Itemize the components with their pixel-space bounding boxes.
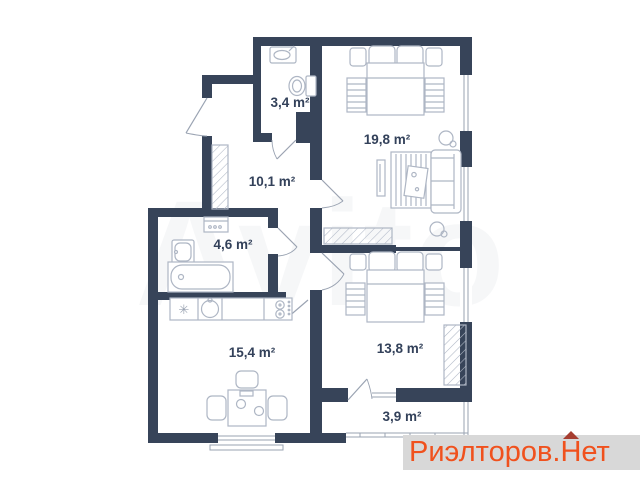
floor-plan-image: Avito	[0, 0, 640, 478]
svg-text:✳: ✳	[179, 303, 190, 318]
wardrobe-icon	[444, 325, 466, 385]
room-label-kitchen-living: 15,4 m²	[229, 345, 276, 360]
rug-icon	[347, 78, 366, 112]
window-icon	[460, 75, 472, 131]
toilet-icon	[289, 76, 316, 96]
washing-machine-icon	[204, 217, 228, 232]
floor-lamp-icon	[439, 131, 456, 147]
room-label-bedroom-second: 13,8 m²	[377, 341, 424, 356]
window-icon	[460, 268, 472, 322]
rug-icon	[425, 78, 444, 112]
room-label-bathroom: 4,6 m²	[213, 237, 253, 252]
bathtub-icon	[168, 262, 233, 292]
sofa-icon	[431, 150, 461, 213]
brand-suffix: ет	[581, 438, 609, 467]
room-label-balcony: 3,9 m²	[382, 409, 422, 424]
wardrobe-icon	[324, 228, 392, 244]
window-icon	[372, 390, 396, 400]
window-icon	[210, 433, 283, 450]
room-label-wc: 3,4 m²	[270, 95, 310, 110]
entrance-door-icon	[186, 98, 207, 136]
brand-roofed-letter: Н	[560, 438, 581, 467]
sink-icon	[172, 240, 194, 264]
floor-plan-drawing: Avito	[0, 0, 640, 478]
rug-icon	[346, 283, 365, 315]
wardrobe-icon	[212, 145, 228, 209]
dining-table-icon	[207, 371, 287, 426]
fridge-icon: ✳	[179, 303, 190, 318]
kitchen-counter: ✳	[170, 298, 292, 320]
mirror-icon	[377, 160, 385, 196]
roof-icon	[563, 431, 579, 439]
door-icon	[272, 140, 296, 159]
coffee-table-icon	[404, 166, 428, 198]
brand-prefix: Риэлторов.	[409, 438, 560, 467]
room-label-hallway: 10,1 m²	[249, 174, 296, 189]
brand-watermark-text: Риэлторов.Нет	[403, 438, 610, 467]
balcony-door-icon	[348, 379, 372, 400]
window-icon	[460, 167, 472, 221]
sink-icon	[270, 46, 296, 63]
brand-watermark-band: Риэлторов.Нет	[403, 435, 640, 470]
rug-icon	[425, 283, 444, 315]
room-label-bedroom-main: 19,8 m²	[364, 132, 411, 147]
